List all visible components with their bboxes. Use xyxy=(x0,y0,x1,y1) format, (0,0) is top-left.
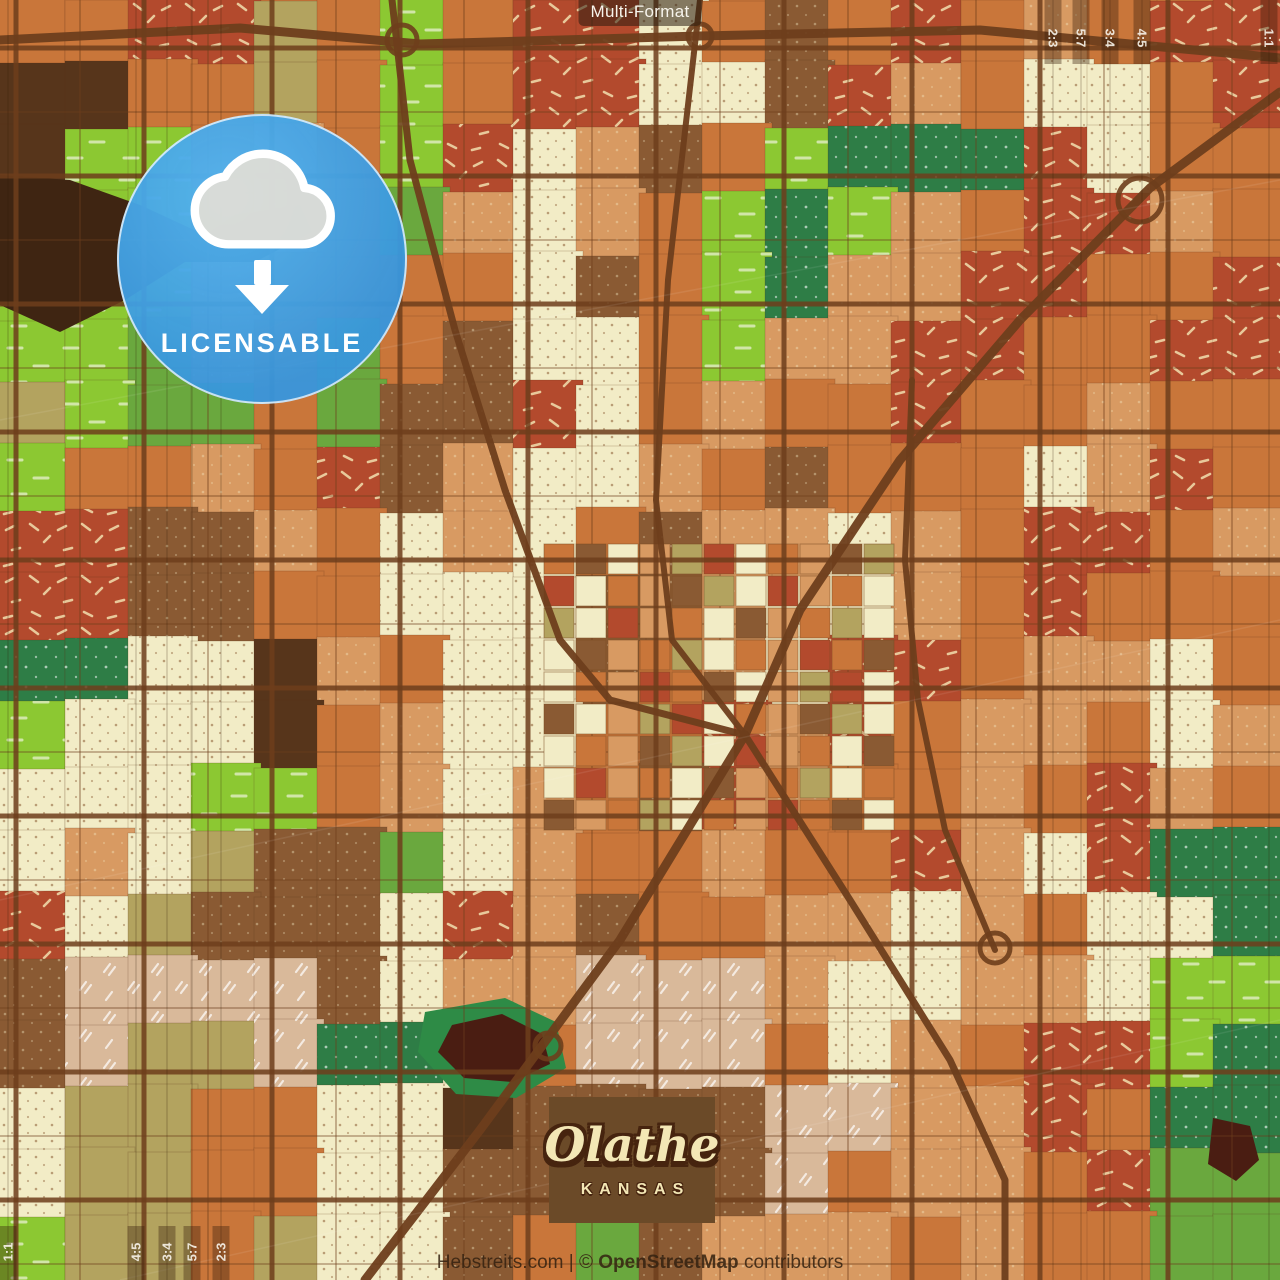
crop-ratio-label: 5:7 xyxy=(1074,29,1089,48)
download-arrow-icon xyxy=(235,260,289,314)
attribution-bar: Hebstreits.com | © OpenStreetMap contrib… xyxy=(0,1252,1280,1274)
attribution-site: Hebstreits.com xyxy=(437,1252,564,1273)
crop-ratio-label: 2:3 xyxy=(1046,29,1061,48)
crop-ratio-label: 4:5 xyxy=(1135,29,1150,48)
state-name: KANSAS xyxy=(574,1181,691,1199)
crop-ratio-label: 3:4 xyxy=(1103,29,1118,49)
licensable-label: LICENSABLE xyxy=(161,328,364,359)
attribution-osm: OpenStreetMap xyxy=(598,1252,738,1273)
cloud-icon xyxy=(184,146,340,258)
licensable-badge[interactable]: LICENSABLE xyxy=(117,114,407,404)
crop-ratio-label: 1:1 xyxy=(1262,29,1277,48)
attribution-separator: | xyxy=(563,1252,579,1273)
city-name: Olathe xyxy=(544,1122,719,1169)
city-title-card: Olathe KANSAS xyxy=(549,1097,715,1223)
map-poster: 2:35:73:44:51:11:14:53:45:72:3 Multi-For… xyxy=(0,0,1280,1280)
format-pill-label: Multi-Format xyxy=(591,2,690,21)
format-pill: Multi-Format xyxy=(579,0,702,26)
attribution-contributors: contributors xyxy=(739,1252,844,1273)
attribution-copyright: © xyxy=(579,1252,598,1273)
